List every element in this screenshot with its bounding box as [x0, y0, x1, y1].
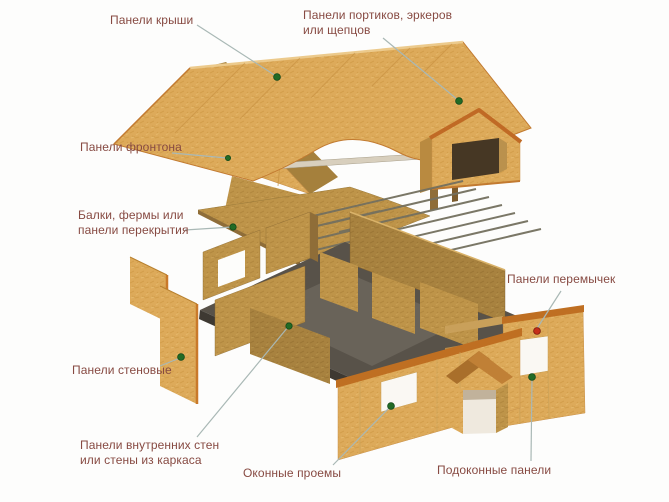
- label-floor-beams: Балки, фермы или панели перекрытия: [78, 208, 190, 238]
- marker-lintel-panels: [534, 328, 541, 335]
- label-gable-panels: Панели фронтона: [80, 140, 182, 155]
- marker-wall-panels: [178, 354, 185, 361]
- label-wall-panels: Панели стеновые: [72, 363, 172, 378]
- marker-floor-beams: [230, 224, 236, 230]
- marker-sill-panels: [529, 374, 536, 381]
- marker-gable-panels: [225, 155, 230, 160]
- marker-interior-walls: [286, 323, 292, 329]
- leader-floor-beams: [185, 227, 232, 230]
- label-sill-panels: Подоконные панели: [437, 463, 551, 478]
- diagram-canvas: Панели крыши Панели портиков, эркеров ил…: [0, 0, 669, 502]
- house-illustration: [0, 0, 669, 502]
- label-lintel-panels: Панели перемычек: [507, 272, 615, 287]
- wall-panel-left: [130, 257, 197, 404]
- label-portico-panels: Панели портиков, эркеров или щепцов: [303, 8, 455, 38]
- marker-window-openings: [388, 403, 395, 410]
- marker-portico-panels: [456, 98, 463, 105]
- label-window-openings: Оконные проемы: [243, 466, 341, 481]
- marker-roof-panels: [274, 74, 281, 81]
- label-interior-walls: Панели внутренних стен или стены из карк…: [80, 438, 225, 468]
- label-roof-panels: Панели крыши: [110, 13, 193, 28]
